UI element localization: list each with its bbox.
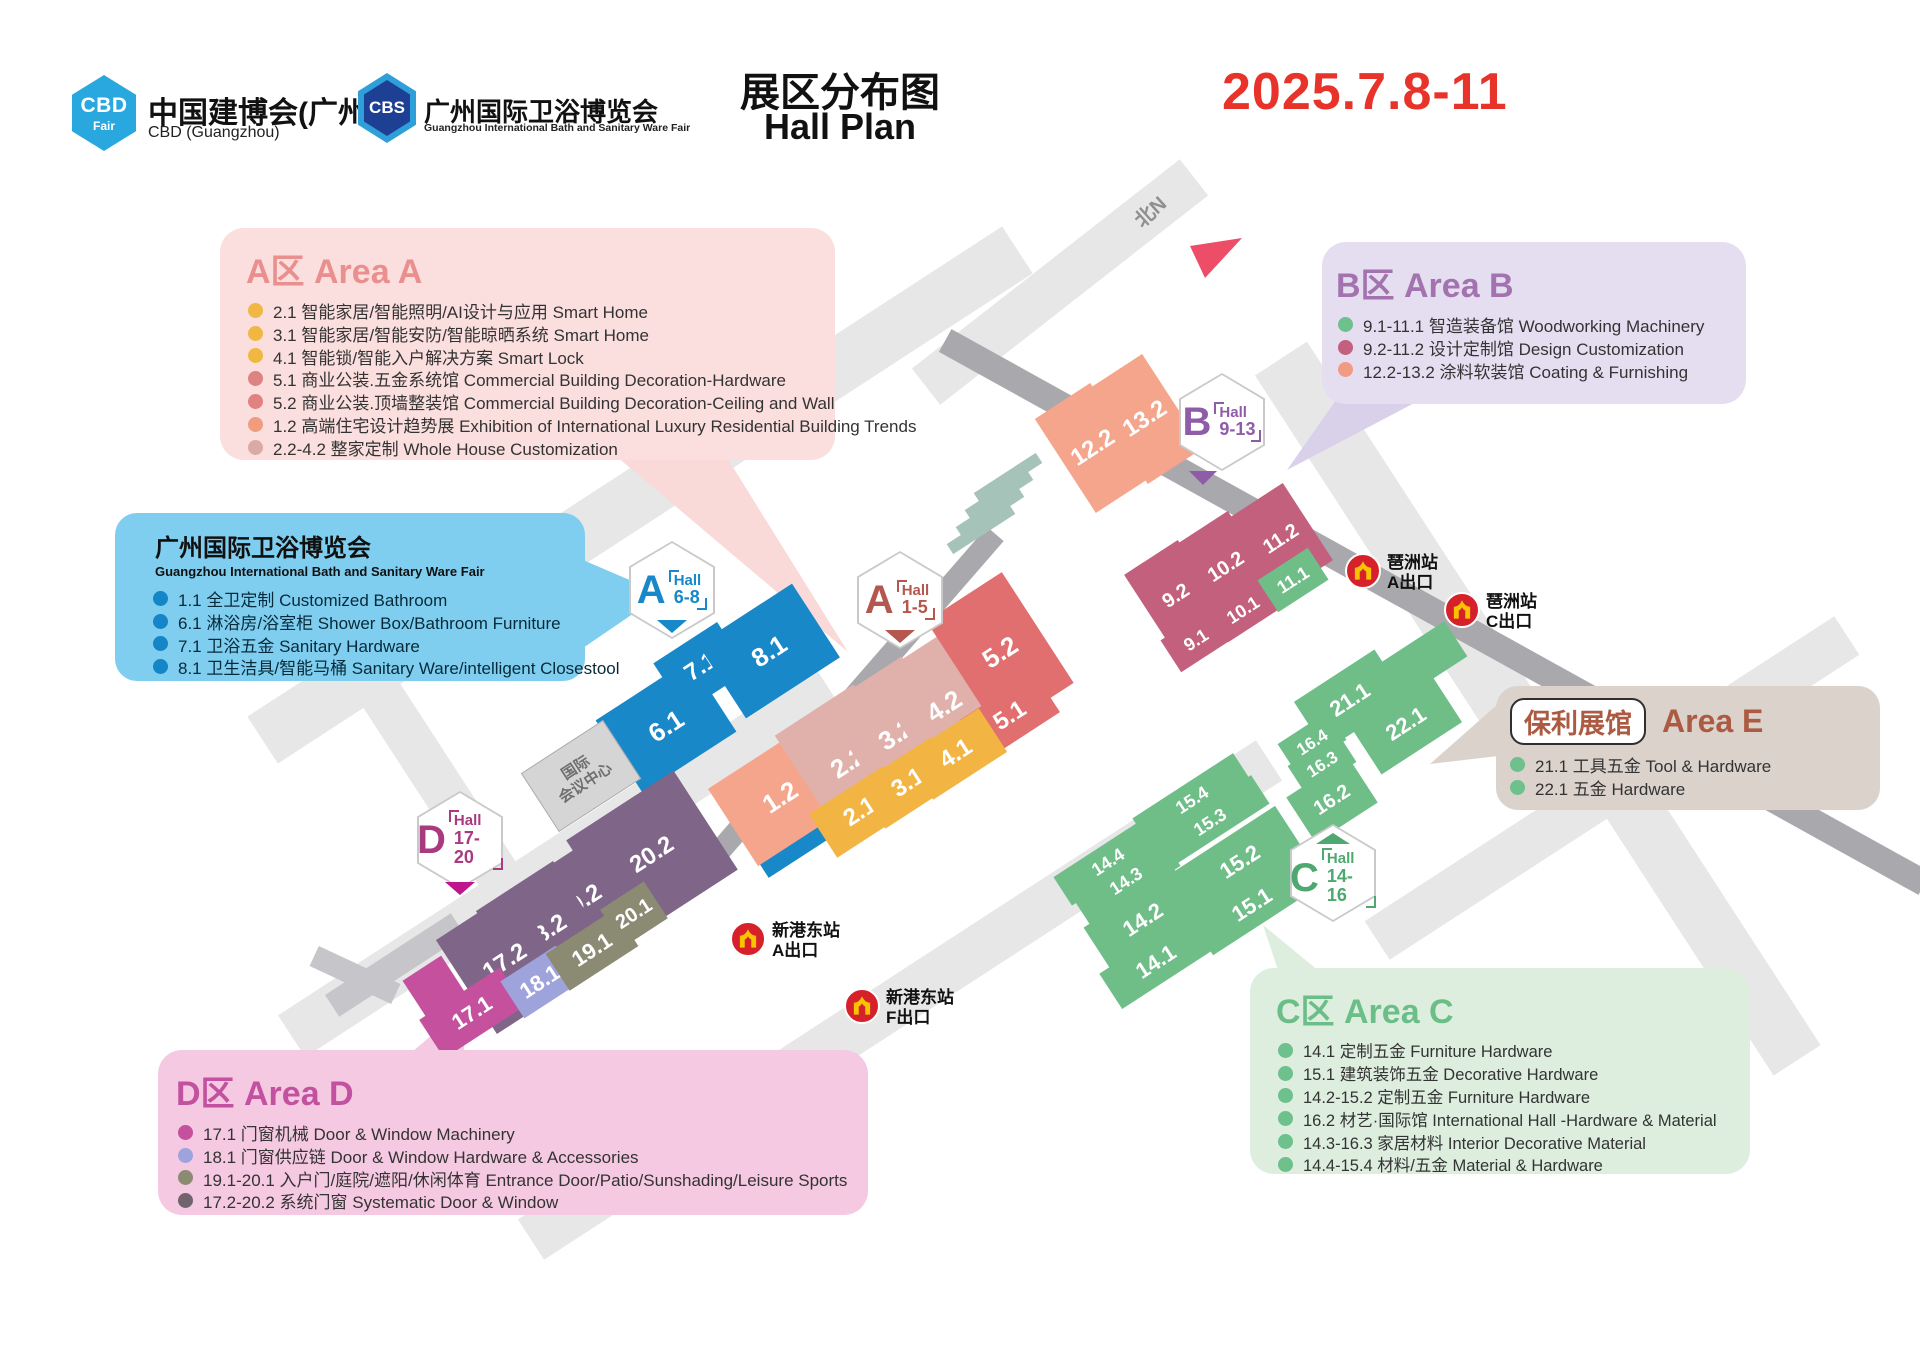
metro-station-pazhou-exit-a: 琶洲站 A出口 (1345, 553, 1438, 592)
legend-dot (178, 1170, 193, 1185)
legend-dot (153, 636, 168, 651)
legend-area-d-list: 17.1 门窗机械 Door & Window Machinery 18.1 门… (158, 1121, 868, 1212)
legend-area-e-header: 保利展馆 Area E (1510, 698, 1880, 745)
legend-area-e-list: 21.1 工具五金 Tool & Hardware 22.1 五金 Hardwa… (1496, 753, 1880, 799)
metro-icon (1444, 592, 1480, 628)
station-exit: F出口 (886, 1008, 954, 1028)
cbs-logo-abbr: CBS (364, 80, 410, 136)
badge-hall-range: 6-8 (674, 588, 702, 607)
badge-hall-word: Hall (902, 583, 930, 599)
legend-item: 22.1 五金 Hardware (1510, 776, 1880, 799)
badge-hall-word: Hall (454, 813, 497, 829)
legend-area-a-title: A区 Area A (246, 244, 835, 293)
legend-area-e: 保利展馆 Area E 21.1 工具五金 Tool & Hardware 22… (1496, 686, 1880, 810)
legend-area-b-list: 9.1-11.1 智造装备馆 Woodworking Machinery 9.2… (1322, 313, 1746, 381)
legend-dot (248, 394, 263, 409)
badge-pointer (445, 882, 475, 895)
cbs-fair-logo: CBS (358, 73, 416, 143)
badge-pointer (1189, 471, 1217, 485)
badge-hall-1-5: A Hall1-5 (857, 551, 943, 649)
legend-dot (1278, 1043, 1293, 1058)
legend-area-d: D区 Area D 17.1 门窗机械 Door & Window Machin… (158, 1050, 868, 1215)
badge-letter: B (1183, 400, 1212, 445)
legend-item: 6.1 淋浴房/浴室柜 Shower Box/Bathroom Furnitur… (153, 610, 585, 633)
metro-station-xingangdong-exit-f: 新港东站 F出口 (844, 988, 954, 1027)
legend-item: 9.1-11.1 智造装备馆 Woodworking Machinery (1338, 313, 1746, 336)
station-exit: A出口 (1387, 573, 1438, 593)
station-exit: C出口 (1486, 612, 1537, 632)
legend-area-b-title: B区 Area B (1336, 258, 1746, 307)
legend-dot (178, 1148, 193, 1163)
legend-item: 14.3-16.3 家居材料 Interior Decorative Mater… (1278, 1130, 1750, 1153)
cbd-logo-sub: Fair (93, 119, 115, 133)
badge-hall-word: Hall (1327, 851, 1370, 867)
legend-dot (248, 371, 263, 386)
legend-area-c-title: C区 Area C (1276, 984, 1750, 1033)
legend-dot (1278, 1066, 1293, 1081)
badge-hall-17-20: D Hall17-20 (417, 791, 503, 889)
legend-dot (1338, 362, 1353, 377)
cbd-logo-abbr: CBD (81, 94, 128, 118)
legend-dot (1510, 757, 1525, 772)
fair-dates: 2025.7.8-11 (1222, 62, 1508, 122)
legend-item: 5.2 商业公装.顶墙整装馆 Commercial Building Decor… (248, 390, 835, 413)
legend-item: 4.1 智能锁/智能入户解决方案 Smart Lock (248, 345, 835, 368)
legend-dot (248, 303, 263, 318)
legend-bath-title: 广州国际卫浴博览会 (155, 528, 585, 563)
legend-item: 1.2 高端住宅设计趋势展 Exhibition of Internationa… (248, 413, 835, 436)
legend-area-e-title: Area E (1662, 703, 1763, 740)
badge-hall-range: 14-16 (1327, 867, 1370, 905)
cbd-fair-subtitle: CBD (Guangzhou) (148, 124, 280, 142)
legend-dot (153, 614, 168, 629)
legend-item: 5.1 商业公装.五金系统馆 Commercial Building Decor… (248, 367, 835, 390)
legend-dot (1338, 317, 1353, 332)
legend-dot (178, 1193, 193, 1208)
badge-hall-6-8: A Hall6-8 (629, 541, 715, 639)
legend-bath-list: 1.1 全卫定制 Customized Bathroom 6.1 淋浴房/浴室柜… (115, 587, 585, 678)
legend-item: 17.2-20.2 系统门窗 Systematic Door & Window (178, 1189, 868, 1212)
station-name: 新港东站 (772, 921, 840, 941)
legend-dot (153, 659, 168, 674)
legend-item: 14.4-15.4 材料/五金 Material & Hardware (1278, 1153, 1750, 1176)
legend-area-c-list: 14.1 定制五金 Furniture Hardware 15.1 建筑装饰五金… (1250, 1039, 1750, 1176)
metro-station-xingangdong-exit-a: 新港东站 A出口 (730, 921, 840, 960)
badge-hall-range: 9-13 (1219, 420, 1255, 439)
legend-dot (248, 417, 263, 432)
cbs-fair-subtitle: Guangzhou International Bath and Sanitar… (424, 122, 690, 134)
north-arrow (1190, 238, 1242, 278)
station-exit: A出口 (772, 941, 840, 961)
poly-pavilion-chip: 保利展馆 (1510, 698, 1646, 745)
badge-hall-range: 1-5 (902, 598, 930, 617)
legend-dot (248, 440, 263, 455)
badge-pointer (657, 620, 687, 633)
legend-area-a: A区 Area A 2.1 智能家居/智能照明/AI设计与应用 Smart Ho… (220, 228, 835, 460)
badge-pointer (885, 630, 915, 643)
legend-dot (1278, 1134, 1293, 1149)
badge-letter: C (1290, 856, 1319, 901)
legend-item: 1.1 全卫定制 Customized Bathroom (153, 587, 585, 610)
legend-item: 3.1 智能家居/智能安防/智能晾晒系统 Smart Home (248, 322, 835, 345)
station-name: 琶洲站 (1387, 553, 1438, 573)
legend-area-b: B区 Area B 9.1-11.1 智造装备馆 Woodworking Mac… (1322, 242, 1746, 404)
legend-item: 2.2-4.2 整家定制 Whole House Customization (248, 436, 835, 459)
legend-dot (248, 326, 263, 341)
legend-dot (1338, 340, 1353, 355)
legend-dot (153, 591, 168, 606)
station-name: 琶洲站 (1486, 592, 1537, 612)
badge-letter: D (417, 818, 446, 863)
badge-hall-9-13: B Hall9-13 (1179, 373, 1265, 471)
legend-dot (1278, 1111, 1293, 1126)
legend-item: 12.2-13.2 涂料软装馆 Coating & Furnishing (1338, 359, 1746, 382)
metro-icon (1345, 553, 1381, 589)
station-name: 新港东站 (886, 988, 954, 1008)
metro-icon (844, 988, 880, 1024)
legend-item: 9.2-11.2 设计定制馆 Design Customization (1338, 336, 1746, 359)
legend-item: 15.1 建筑装饰五金 Decorative Hardware (1278, 1062, 1750, 1085)
legend-area-d-title: D区 Area D (176, 1066, 868, 1115)
legend-dot (1510, 780, 1525, 795)
cbd-fair-logo: CBD Fair (72, 75, 136, 151)
legend-item: 7.1 卫浴五金 Sanitary Hardware (153, 633, 585, 656)
badge-letter: A (637, 568, 666, 613)
legend-item: 19.1-20.1 入户门/庭院/遮阳/休闲体育 Entrance Door/P… (178, 1167, 868, 1190)
legend-dot (248, 348, 263, 363)
legend-item: 21.1 工具五金 Tool & Hardware (1510, 753, 1880, 776)
hall-plan-poster: CBD Fair 中国建博会(广州) CBD (Guangzhou) CBS 广… (0, 0, 1920, 1358)
badge-letter: A (865, 578, 894, 623)
legend-item: 18.1 门窗供应链 Door & Window Hardware & Acce… (178, 1144, 868, 1167)
legend-dot (178, 1125, 193, 1140)
legend-dot (1278, 1157, 1293, 1172)
badge-hall-14-16: C Hall14-16 (1290, 824, 1376, 922)
badge-hall-range: 17-20 (454, 829, 497, 867)
badge-hall-word: Hall (674, 573, 702, 589)
legend-area-a-list: 2.1 智能家居/智能照明/AI设计与应用 Smart Home 3.1 智能家… (220, 299, 835, 459)
legend-item: 2.1 智能家居/智能照明/AI设计与应用 Smart Home (248, 299, 835, 322)
metro-icon (730, 921, 766, 957)
legend-item: 16.2 材艺·国际馆 International Hall -Hardware… (1278, 1107, 1750, 1130)
legend-item: 14.1 定制五金 Furniture Hardware (1278, 1039, 1750, 1062)
legend-area-c: C区 Area C 14.1 定制五金 Furniture Hardware 1… (1250, 968, 1750, 1174)
legend-dot (1278, 1088, 1293, 1103)
legend-bath-subtitle: Guangzhou International Bath and Sanitar… (155, 564, 585, 579)
legend-item: 17.1 门窗机械 Door & Window Machinery (178, 1121, 868, 1144)
legend-bath-fair: 广州国际卫浴博览会 Guangzhou International Bath a… (115, 513, 585, 681)
legend-item: 8.1 卫生洁具/智能马桶 Sanitary Ware/intelligent … (153, 655, 585, 678)
badge-hall-word: Hall (1219, 405, 1255, 421)
legend-item: 14.2-15.2 定制五金 Furniture Hardware (1278, 1085, 1750, 1108)
metro-station-pazhou-exit-c: 琶洲站 C出口 (1444, 592, 1537, 631)
page-title-en: Hall Plan (700, 106, 980, 148)
